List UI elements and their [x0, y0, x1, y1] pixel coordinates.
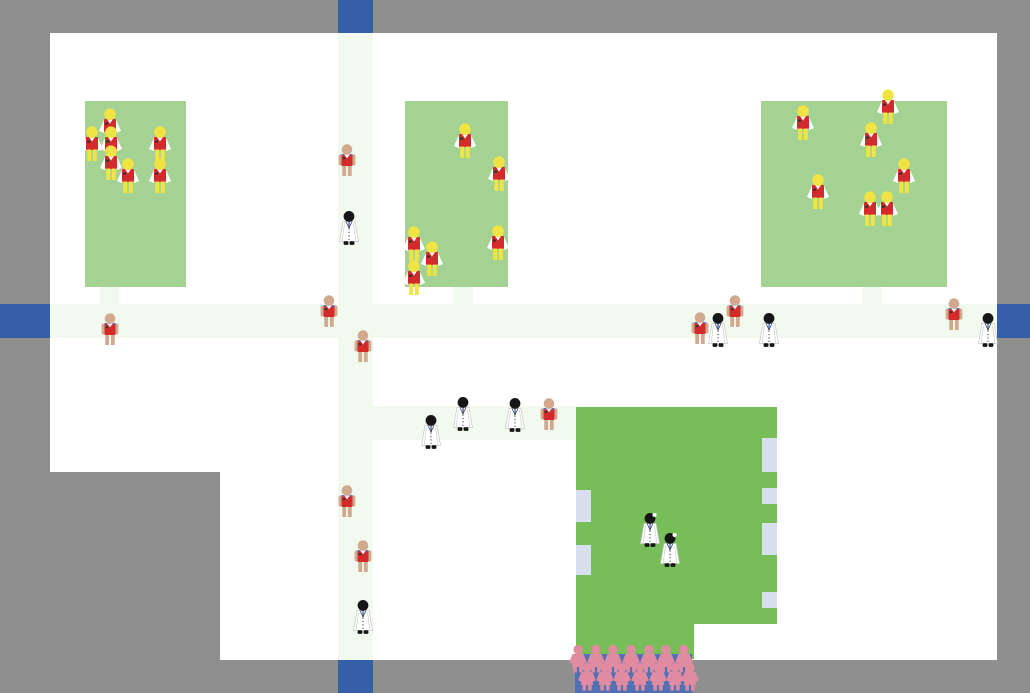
villager-sprite[interactable] — [336, 485, 358, 519]
doctor-sprite[interactable] — [503, 398, 527, 434]
road-stub-field-2 — [453, 287, 473, 304]
game-map — [0, 0, 1030, 693]
map-exit-bottom[interactable] — [338, 660, 373, 693]
building-window — [576, 490, 591, 522]
doctor-sprite[interactable] — [757, 313, 781, 349]
doctor-sprite[interactable] — [351, 600, 375, 636]
building-window — [576, 545, 591, 575]
villager-sprite[interactable] — [352, 330, 374, 364]
farmer-sprite[interactable] — [451, 123, 479, 161]
map-exit-top[interactable] — [338, 0, 373, 33]
map-exit-right[interactable] — [997, 304, 1030, 338]
doctor-sprite[interactable] — [706, 313, 730, 349]
building-window — [762, 592, 777, 608]
doctor-sprite[interactable] — [451, 397, 475, 433]
doctor-sprite[interactable] — [419, 415, 443, 451]
clinic-building[interactable] — [576, 407, 777, 624]
farmer-sprite[interactable] — [873, 191, 901, 229]
farmer-sprite[interactable] — [114, 158, 142, 196]
building-window — [762, 438, 777, 472]
doctor-sprite[interactable] — [658, 533, 682, 569]
visitor-sprite[interactable] — [679, 663, 701, 693]
villager-sprite[interactable] — [318, 295, 340, 329]
farmer-sprite[interactable] — [400, 260, 428, 298]
villager-sprite[interactable] — [538, 398, 560, 432]
farmer-sprite[interactable] — [857, 122, 885, 160]
farmer-sprite[interactable] — [484, 225, 512, 263]
building-window — [762, 523, 777, 555]
doctor-sprite[interactable] — [976, 313, 1000, 349]
villager-sprite[interactable] — [352, 540, 374, 574]
doctor-sprite[interactable] — [337, 211, 361, 247]
road-stub-field-1 — [100, 287, 119, 304]
farmer-sprite[interactable] — [804, 174, 832, 212]
road-horizontal — [50, 304, 997, 338]
map-exit-left[interactable] — [0, 304, 50, 338]
villager-sprite[interactable] — [943, 298, 965, 332]
building-window — [762, 488, 777, 504]
villager-sprite[interactable] — [336, 144, 358, 178]
farmer-sprite[interactable] — [789, 105, 817, 143]
farmer-sprite[interactable] — [146, 158, 174, 196]
villager-sprite[interactable] — [99, 313, 121, 347]
road-stub-field-3 — [862, 287, 882, 304]
farmer-sprite[interactable] — [485, 156, 513, 194]
